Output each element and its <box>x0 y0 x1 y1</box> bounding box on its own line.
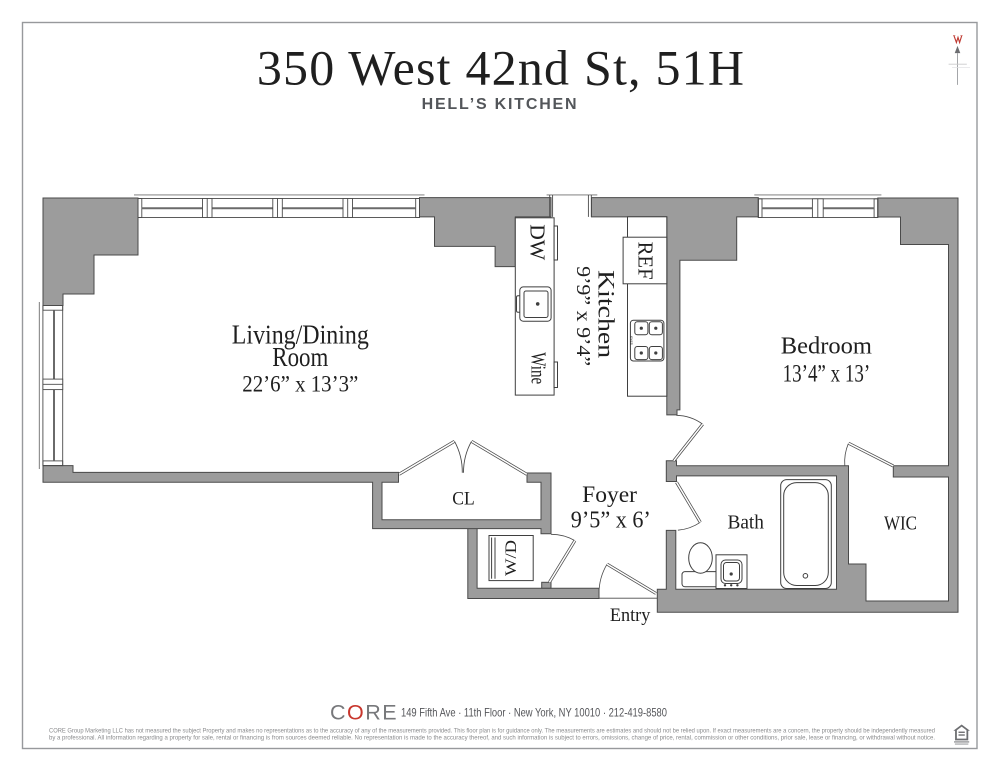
svg-text:Foyer: Foyer <box>582 482 637 508</box>
svg-text:Room: Room <box>272 342 328 372</box>
svg-text:CORE Group Marketing LLC has n: CORE Group Marketing LLC has not measure… <box>49 728 935 734</box>
svg-text:DW: DW <box>526 224 550 260</box>
svg-text:Entry: Entry <box>610 605 651 626</box>
svg-text:HELL’S KITCHEN: HELL’S KITCHEN <box>422 96 579 113</box>
svg-text:oven: oven <box>630 336 635 345</box>
svg-text:REF: REF <box>634 242 658 280</box>
svg-text:Bedroom: Bedroom <box>781 333 872 360</box>
svg-text:350 West 42nd St, 51H: 350 West 42nd St, 51H <box>257 40 745 96</box>
svg-text:Wine: Wine <box>526 352 550 384</box>
svg-text:WIC: WIC <box>884 513 917 535</box>
svg-text:13’4” x 13’: 13’4” x 13’ <box>783 360 871 387</box>
svg-text:149 Fifth Ave · 11th Floor · N: 149 Fifth Ave · 11th Floor · New York, N… <box>401 706 667 720</box>
svg-text:9’9” x 9’4”: 9’9” x 9’4” <box>572 266 593 366</box>
svg-text:9’5” x 6’: 9’5” x 6’ <box>571 507 651 534</box>
svg-text:CL: CL <box>452 490 475 510</box>
svg-text:22’6” x 13’3”: 22’6” x 13’3” <box>242 371 358 397</box>
svg-text:Bath: Bath <box>727 512 764 534</box>
svg-text:W/D: W/D <box>503 540 520 576</box>
svg-text:by a professional. All informa: by a professional. All information regar… <box>49 736 935 742</box>
svg-text:Kitchen: Kitchen <box>593 270 618 359</box>
svg-text:CORE: CORE <box>330 701 398 725</box>
